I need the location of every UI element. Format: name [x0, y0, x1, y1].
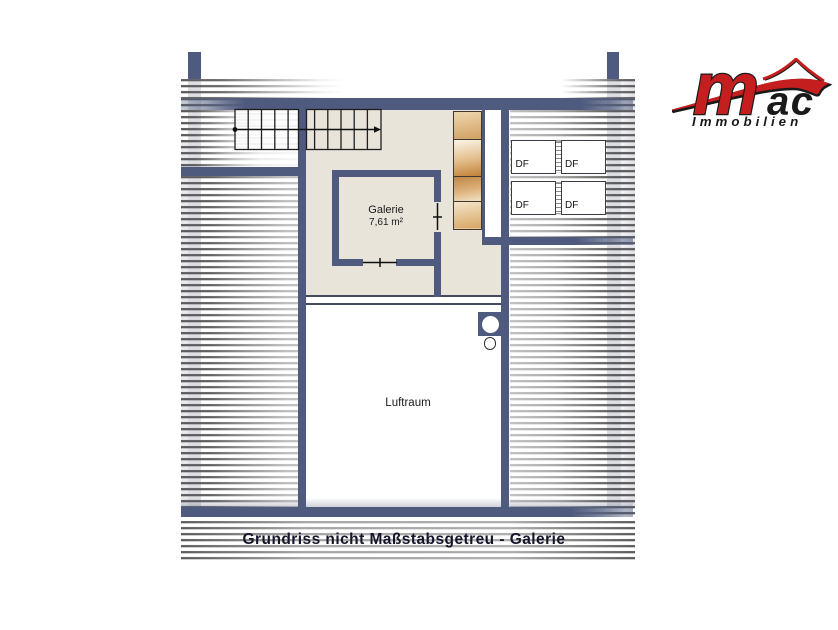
svg-text:Immobilien: Immobilien	[692, 114, 802, 129]
